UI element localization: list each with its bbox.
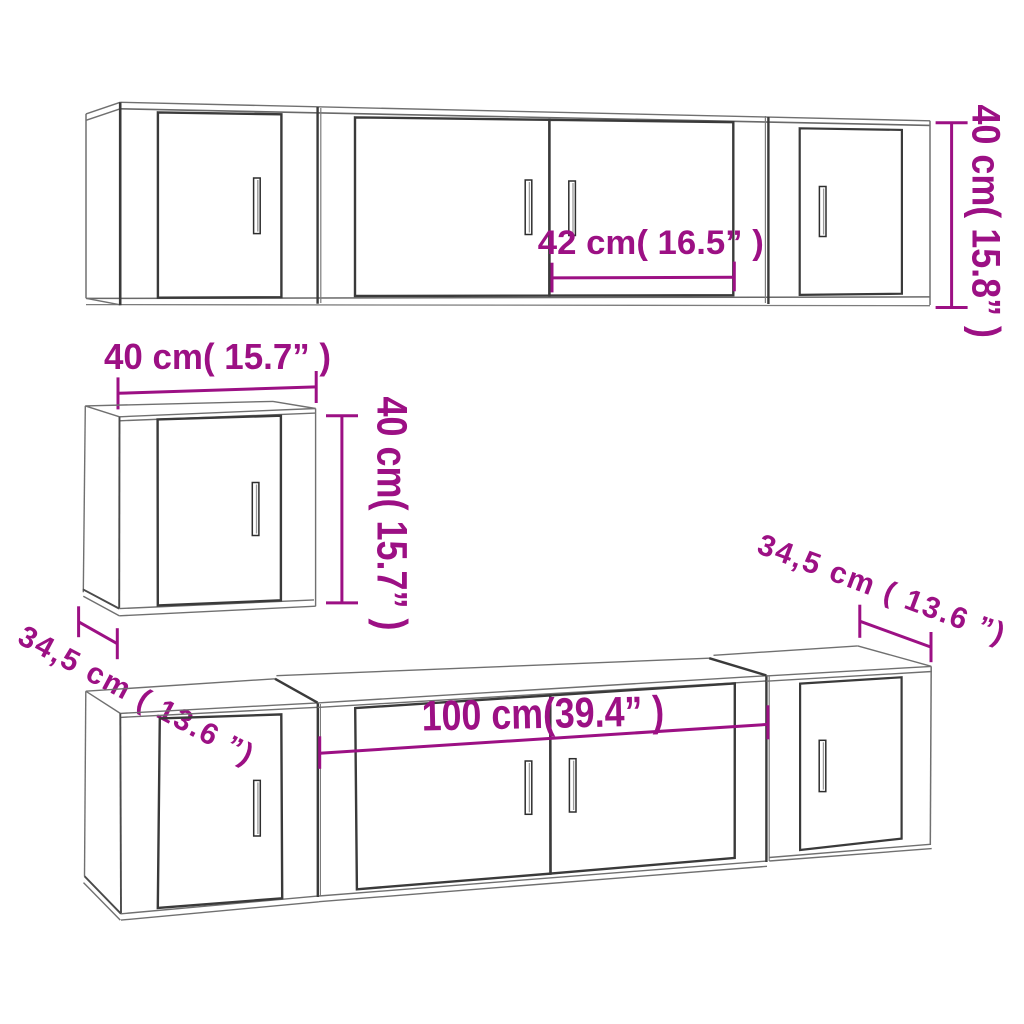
svg-text:34,5 cm ( 13.6 ”): 34,5 cm ( 13.6 ”) bbox=[753, 528, 1009, 650]
svg-text:100 cm(39.4” ): 100 cm(39.4” ) bbox=[421, 688, 664, 740]
svg-text:40 cm( 15.7” ): 40 cm( 15.7” ) bbox=[104, 336, 331, 377]
svg-text:40 cm( 15.8” ): 40 cm( 15.8” ) bbox=[964, 105, 1008, 339]
svg-text:42 cm( 16.5” ): 42 cm( 16.5” ) bbox=[538, 224, 764, 262]
svg-text:34,5 cm ( 13.6 ”): 34,5 cm ( 13.6 ”) bbox=[13, 620, 259, 772]
svg-text:40 cm( 15.7” ): 40 cm( 15.7” ) bbox=[368, 397, 416, 631]
